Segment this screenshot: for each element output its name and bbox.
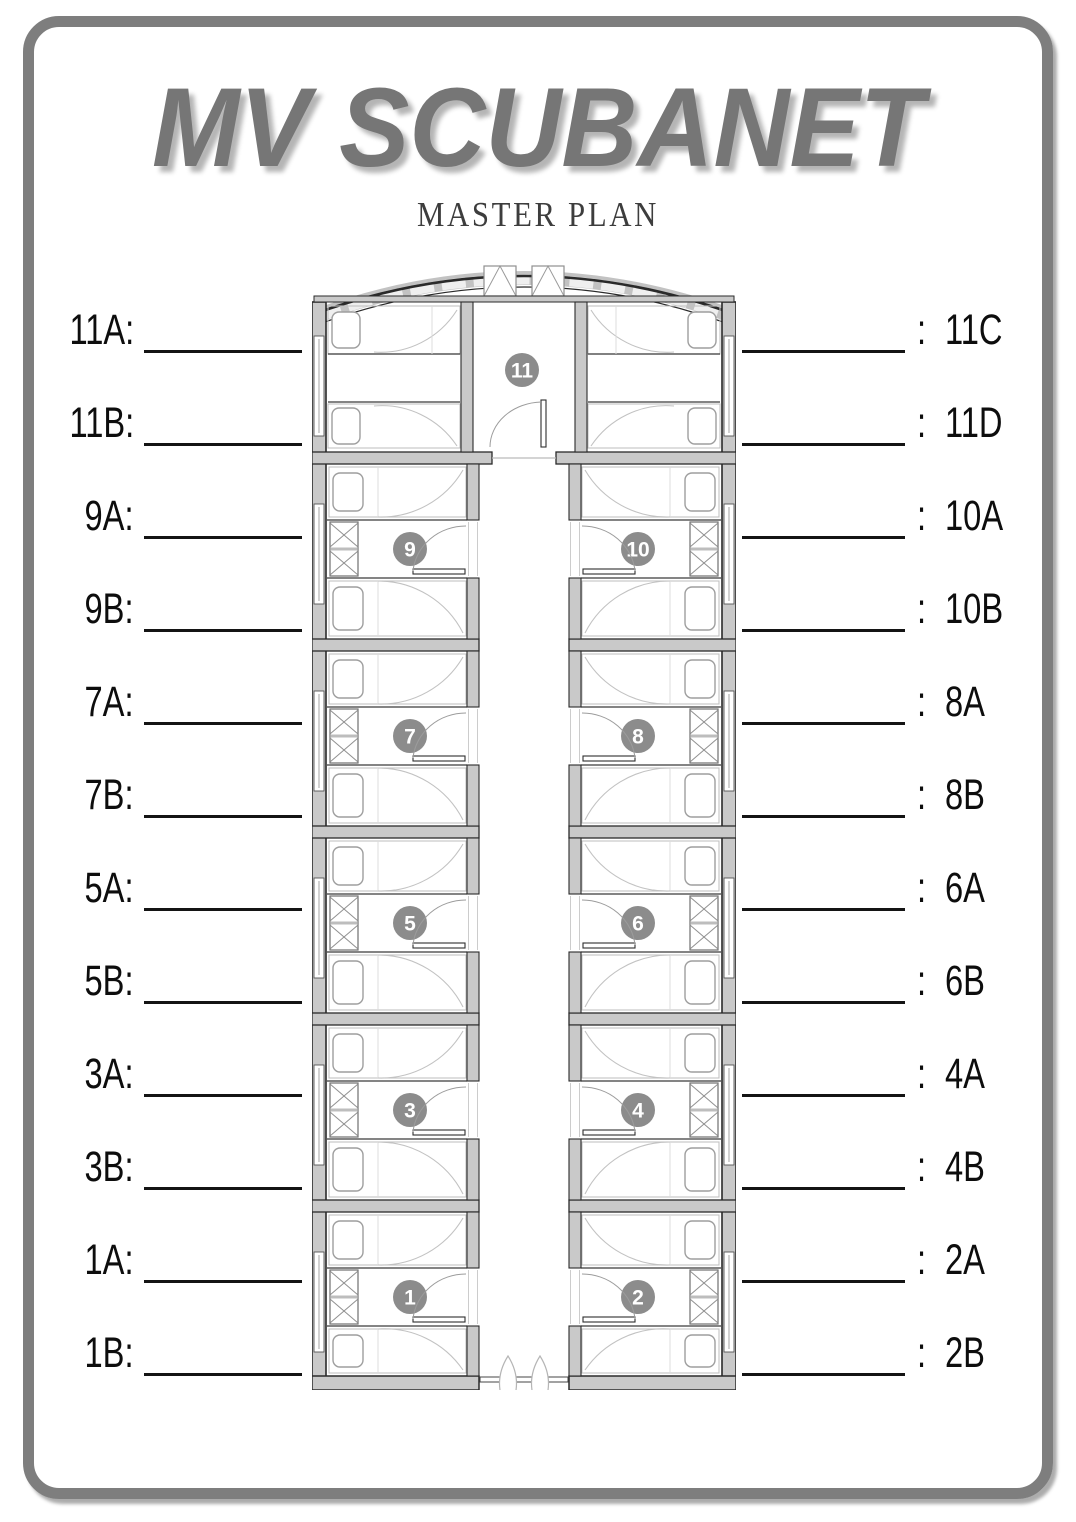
page-subtitle: MASTER PLAN: [65, 197, 1012, 232]
door-swing: [413, 900, 466, 945]
bed-pillow: [685, 961, 715, 1004]
corridor-wall: [569, 651, 581, 707]
master-plan-sheet: MV SCUBANET MASTER PLAN 1197531108642 11…: [0, 0, 1076, 1522]
bed-pillow: [333, 587, 363, 630]
assignment-row-left-7A: 7A:: [0, 675, 302, 725]
corridor-wall: [467, 952, 479, 1013]
name-blank-9A[interactable]: [144, 492, 302, 539]
corridor-wall: [467, 1139, 479, 1200]
deck-wall: [312, 1200, 479, 1212]
door-swing: [413, 1274, 466, 1319]
curtain-arc: [585, 1031, 670, 1078]
assignment-row-left-1A: 1A:: [0, 1233, 302, 1283]
separator-colon: :: [917, 866, 926, 911]
corridor-wall: [569, 1326, 581, 1376]
page-title: MV SCUBANET: [32, 72, 1043, 184]
door-leaf: [541, 400, 546, 447]
door-swing: [413, 713, 466, 758]
door-leaf: [583, 569, 635, 574]
name-blank-10B[interactable]: [742, 585, 905, 632]
door-swing: [582, 526, 635, 571]
assignment-row-right-11D: :11D: [742, 396, 1076, 446]
assignment-row-left-5B: 5B:: [0, 954, 302, 1004]
bed-pillow: [333, 1148, 363, 1191]
deck-wall: [569, 1013, 736, 1025]
bed-pillow: [685, 1148, 715, 1191]
cabin-number: 10: [626, 539, 649, 562]
curtain-arc: [585, 657, 670, 704]
curtain-arc: [378, 955, 463, 1007]
name-blank-3A[interactable]: [144, 1050, 302, 1097]
corridor-wall: [467, 765, 479, 826]
separator-colon: :: [917, 773, 926, 818]
bed-pillow: [685, 1221, 715, 1259]
berth-label-5A: 5A:: [85, 866, 134, 911]
curtain-arc: [591, 406, 674, 446]
assignment-row-left-5A: 5A:: [0, 861, 302, 911]
berth-label-6A: 6A: [945, 866, 985, 911]
bed-pillow: [333, 961, 363, 1004]
cabin-number: 7: [404, 726, 416, 749]
door-swing: [582, 900, 635, 945]
berth-label-2A: 2A: [945, 1238, 985, 1283]
assignment-row-right-6A: :6A: [742, 861, 1076, 911]
bed-pillow: [333, 1335, 363, 1367]
assignment-row-right-2B: :2B: [742, 1326, 1076, 1376]
curtain-arc: [378, 470, 463, 517]
berth-label-11D: 11D: [945, 401, 1003, 446]
berth-label-7B: 7B:: [85, 773, 134, 818]
door-leaf: [583, 756, 635, 761]
door-swing: [582, 1274, 635, 1319]
name-blank-11D[interactable]: [742, 399, 905, 446]
corridor-wall: [569, 1025, 581, 1081]
bed-pillow: [333, 847, 363, 885]
bow-hatch: [532, 266, 564, 296]
corridor-wall: [569, 952, 581, 1013]
name-blank-3B[interactable]: [144, 1143, 302, 1190]
curtain-arc: [378, 1329, 463, 1370]
name-blank-7A[interactable]: [144, 678, 302, 725]
deck-wall: [312, 639, 479, 651]
curtain-arc: [378, 657, 463, 704]
cabin-number: 6: [632, 913, 644, 936]
curtain-arc: [585, 1142, 670, 1194]
bed-pillow: [688, 312, 716, 348]
berth-label-10A: 10A: [945, 494, 1003, 539]
deck-wall: [556, 452, 736, 464]
deck-wall: [569, 639, 736, 651]
separator-colon: :: [917, 680, 926, 725]
berth-label-4A: 4A: [945, 1052, 985, 1097]
assignment-row-right-6B: :6B: [742, 954, 1076, 1004]
berth-label-7A: 7A:: [85, 680, 134, 725]
berth-label-11A: 11A:: [69, 308, 134, 353]
assignment-row-right-4A: :4A: [742, 1047, 1076, 1097]
assignment-row-left-1B: 1B:: [0, 1326, 302, 1376]
assignment-row-left-7B: 7B:: [0, 768, 302, 818]
name-blank-11A[interactable]: [144, 306, 302, 353]
stern-wall: [569, 1376, 736, 1390]
curtain-arc: [378, 1031, 463, 1078]
berth-label-9A: 9A:: [85, 494, 134, 539]
berth-label-8A: 8A: [945, 680, 985, 725]
curtain-arc: [374, 406, 457, 446]
corridor-wall: [569, 578, 581, 639]
bed-pillow: [685, 774, 715, 817]
name-blank-11B[interactable]: [144, 399, 302, 446]
separator-colon: :: [917, 1331, 926, 1376]
cabin-number: 9: [404, 539, 416, 562]
corridor-wall: [467, 578, 479, 639]
door-swing: [413, 526, 466, 571]
stern-threshold: [480, 1377, 568, 1382]
cabin-number: 11: [511, 360, 534, 383]
cabin-number: 2: [632, 1287, 644, 1310]
cabin-number: 5: [404, 913, 416, 936]
name-blank-8A[interactable]: [742, 678, 905, 725]
name-blank-6B[interactable]: [742, 957, 905, 1004]
bed-pillow: [333, 473, 363, 511]
berth-label-8B: 8B: [945, 773, 985, 818]
name-blank-10A[interactable]: [742, 492, 905, 539]
corridor-wall: [467, 838, 479, 894]
berth-label-5B: 5B:: [85, 959, 134, 1004]
curtain-arc: [585, 1218, 670, 1265]
corridor-wall: [467, 1326, 479, 1376]
door-leaf: [413, 943, 465, 948]
cabin-number: 3: [404, 1100, 416, 1123]
assignment-row-right-2A: :2A: [742, 1233, 1076, 1283]
hull-wall-left: [312, 302, 326, 1390]
curtain-arc: [585, 844, 670, 891]
door-leaf: [413, 1130, 465, 1135]
cabin11-front-wall: [314, 296, 734, 302]
corridor-wall: [569, 765, 581, 826]
assignment-row-right-8B: :8B: [742, 768, 1076, 818]
bed-pillow: [685, 1034, 715, 1072]
bed-pillow: [333, 774, 363, 817]
deck-wall: [312, 826, 479, 838]
curtain-arc: [585, 1329, 670, 1370]
assignment-row-left-3A: 3A:: [0, 1047, 302, 1097]
assignment-row-left-9B: 9B:: [0, 582, 302, 632]
corridor-wall: [467, 1025, 479, 1081]
separator-colon: :: [917, 1052, 926, 1097]
name-blank-5A[interactable]: [144, 864, 302, 911]
stern-door-leaf: [532, 1356, 549, 1390]
name-blank-7B[interactable]: [144, 771, 302, 818]
name-blank-4B[interactable]: [742, 1143, 905, 1190]
bed-pillow: [688, 408, 716, 444]
name-blank-1A[interactable]: [144, 1236, 302, 1283]
separator-colon: :: [917, 1145, 926, 1190]
assignment-row-right-11C: :11C: [742, 303, 1076, 353]
deck-wall: [569, 1200, 736, 1212]
bed-pillow: [685, 587, 715, 630]
corridor-wall: [467, 1212, 479, 1268]
bow-hatch: [484, 266, 516, 296]
curtain-arc: [378, 844, 463, 891]
name-blank-1B[interactable]: [144, 1329, 302, 1376]
deck-plan: 1197531108642: [312, 250, 736, 1390]
separator-colon: :: [917, 1238, 926, 1283]
corridor-wall: [467, 464, 479, 520]
curtain-arc: [378, 1218, 463, 1265]
stern-wall: [312, 1376, 479, 1390]
berth-label-3B: 3B:: [85, 1145, 134, 1190]
name-blank-11C[interactable]: [742, 306, 905, 353]
separator-colon: :: [917, 401, 926, 446]
bed-pillow: [685, 660, 715, 698]
door-leaf: [583, 943, 635, 948]
corridor-wall: [467, 651, 479, 707]
bed-pillow: [333, 660, 363, 698]
berth-label-11C: 11C: [945, 308, 1003, 353]
cabin-number: 1: [404, 1287, 416, 1310]
curtain-arc: [591, 310, 674, 352]
curtain-arc: [585, 955, 670, 1007]
curtain-arc: [585, 470, 670, 517]
door-swing: [490, 402, 541, 447]
assignment-row-right-10B: :10B: [742, 582, 1076, 632]
bed-pillow: [333, 1034, 363, 1072]
cabin-number: 4: [632, 1100, 644, 1123]
berth-label-11B: 11B:: [69, 401, 134, 446]
separator-colon: :: [917, 959, 926, 1004]
corridor-wall: [569, 1139, 581, 1200]
assignment-row-right-10A: :10A: [742, 489, 1076, 539]
deck-wall: [569, 826, 736, 838]
door-leaf: [413, 756, 465, 761]
berth-label-2B: 2B: [945, 1331, 985, 1376]
bed-pillow: [685, 473, 715, 511]
door-leaf: [583, 1130, 635, 1135]
name-blank-9B[interactable]: [144, 585, 302, 632]
bed-pillow: [685, 1335, 715, 1367]
name-blank-2A[interactable]: [742, 1236, 905, 1283]
curtain-arc: [378, 768, 463, 820]
assignment-row-left-11A: 11A:: [0, 303, 302, 353]
corridor-wall: [569, 464, 581, 520]
vestibule-wall: [575, 302, 587, 452]
vestibule-wall: [461, 302, 473, 452]
curtain-arc: [378, 1142, 463, 1194]
cabin-number: 8: [632, 726, 644, 749]
curtain-arc: [378, 581, 463, 633]
bed-pillow: [685, 847, 715, 885]
door-swing: [582, 1087, 635, 1132]
separator-colon: :: [917, 494, 926, 539]
separator-colon: :: [917, 308, 926, 353]
bed-pillow: [333, 1221, 363, 1259]
assignment-row-right-8A: :8A: [742, 675, 1076, 725]
stern-door-leaf: [500, 1356, 517, 1390]
assignment-row-right-4B: :4B: [742, 1140, 1076, 1190]
assignment-row-left-3B: 3B:: [0, 1140, 302, 1190]
berth-label-1A: 1A:: [85, 1238, 134, 1283]
name-blank-5B[interactable]: [144, 957, 302, 1004]
corridor-wall: [569, 838, 581, 894]
berth-label-1B: 1B:: [85, 1331, 134, 1376]
name-blank-8B[interactable]: [742, 771, 905, 818]
berth-label-4B: 4B: [945, 1145, 985, 1190]
curtain-arc: [374, 310, 457, 352]
berth-label-10B: 10B: [945, 587, 1003, 632]
corridor-wall: [569, 1212, 581, 1268]
name-blank-6A[interactable]: [742, 864, 905, 911]
berth-label-6B: 6B: [945, 959, 985, 1004]
curtain-arc: [585, 768, 670, 820]
berth-label-3A: 3A:: [85, 1052, 134, 1097]
berth-label-9B: 9B:: [85, 587, 134, 632]
door-leaf: [413, 1317, 465, 1322]
deck-wall: [312, 1013, 479, 1025]
name-blank-4A[interactable]: [742, 1050, 905, 1097]
deck-wall: [312, 452, 492, 464]
bed-pillow: [332, 408, 360, 444]
assignment-row-left-11B: 11B:: [0, 396, 302, 446]
door-leaf: [583, 1317, 635, 1322]
name-blank-2B[interactable]: [742, 1329, 905, 1376]
door-leaf: [413, 569, 465, 574]
curtain-arc: [585, 581, 670, 633]
assignment-row-left-9A: 9A:: [0, 489, 302, 539]
door-swing: [582, 713, 635, 758]
separator-colon: :: [917, 587, 926, 632]
door-swing: [413, 1087, 466, 1132]
bed-pillow: [332, 312, 360, 348]
hull-wall-right: [722, 302, 736, 1390]
